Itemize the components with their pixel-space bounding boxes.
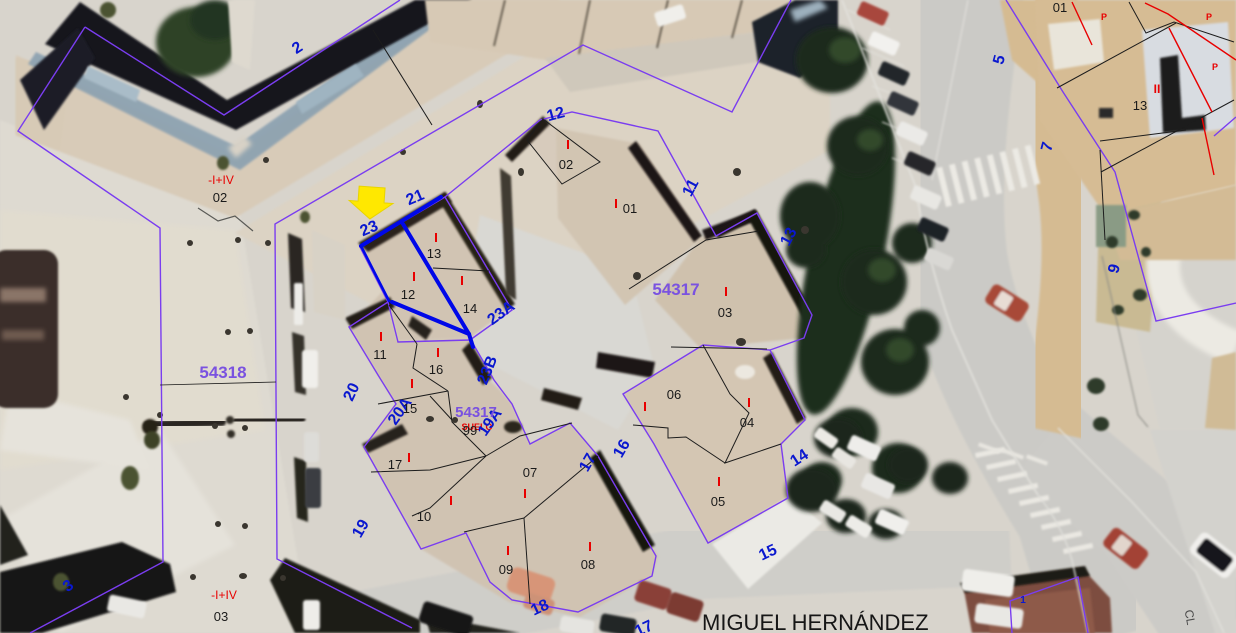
svg-text:54317: 54317 xyxy=(652,280,699,299)
svg-text:-I+IV: -I+IV xyxy=(211,588,237,602)
svg-text:54318: 54318 xyxy=(199,363,246,382)
svg-text:12: 12 xyxy=(401,287,415,302)
svg-text:17: 17 xyxy=(388,457,402,472)
svg-text:01: 01 xyxy=(623,201,637,216)
svg-text:16: 16 xyxy=(429,362,443,377)
svg-text:15: 15 xyxy=(403,401,417,416)
svg-text:06: 06 xyxy=(667,387,681,402)
svg-text:02: 02 xyxy=(559,157,573,172)
svg-text:13: 13 xyxy=(427,246,441,261)
svg-text:08: 08 xyxy=(581,557,595,572)
svg-text:P: P xyxy=(1212,62,1218,72)
svg-text:03: 03 xyxy=(718,305,732,320)
svg-text:MIGUEL HERNÁNDEZ: MIGUEL HERNÁNDEZ xyxy=(702,610,929,633)
svg-text:10: 10 xyxy=(417,509,431,524)
svg-text:99: 99 xyxy=(463,423,477,438)
svg-text:03: 03 xyxy=(214,609,228,624)
svg-text:1: 1 xyxy=(1020,595,1026,606)
svg-text:02: 02 xyxy=(213,190,227,205)
svg-text:11: 11 xyxy=(373,347,387,362)
svg-text:-I+IV: -I+IV xyxy=(208,173,234,187)
svg-text:01: 01 xyxy=(1053,0,1067,15)
svg-text:54317: 54317 xyxy=(455,404,497,421)
svg-text:CL: CL xyxy=(1182,609,1199,627)
svg-text:05: 05 xyxy=(711,494,725,509)
svg-text:P: P xyxy=(1101,12,1107,22)
svg-text:07: 07 xyxy=(523,465,537,480)
svg-text:13: 13 xyxy=(1133,98,1147,113)
svg-text:09: 09 xyxy=(499,562,513,577)
svg-text:04: 04 xyxy=(740,415,754,430)
svg-text:P: P xyxy=(1206,12,1212,22)
svg-text:14: 14 xyxy=(463,301,477,316)
svg-text:II: II xyxy=(1154,82,1161,96)
